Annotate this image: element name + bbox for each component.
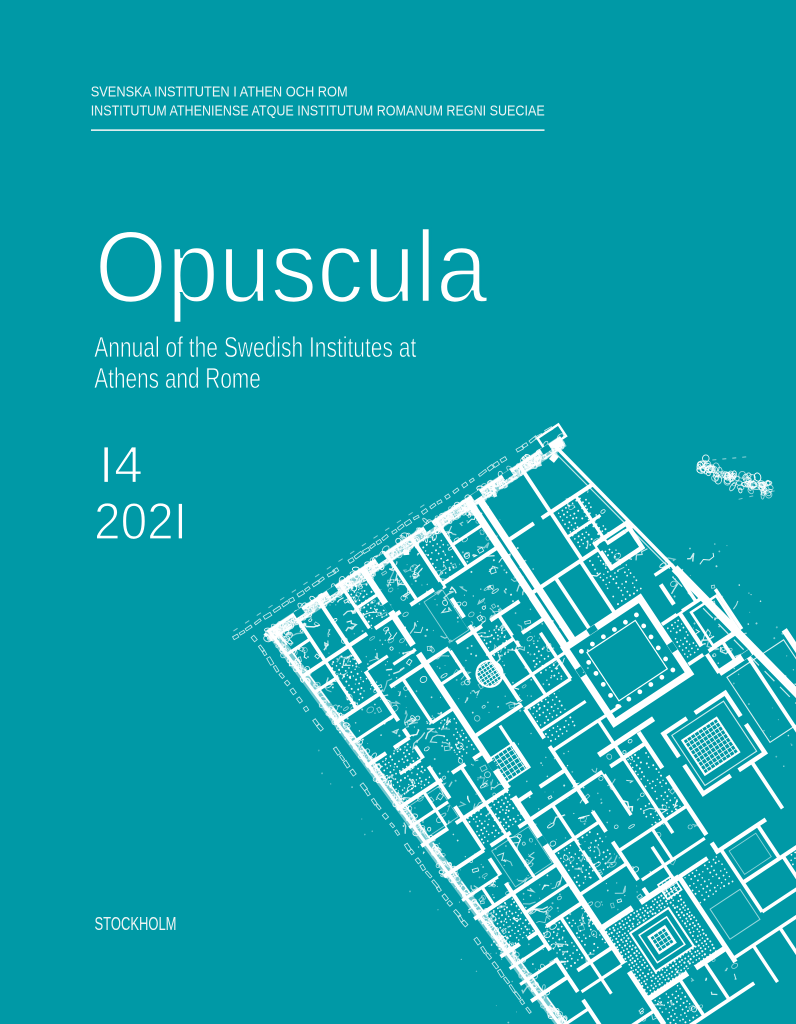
svg-text:202I: 202I (94, 493, 187, 551)
svg-text:Opuscula: Opuscula (95, 210, 488, 324)
svg-text:Athens and Rome: Athens and Rome (94, 363, 260, 395)
svg-text:SVENSKA INSTITUTEN I ATHEN OCH: SVENSKA INSTITUTEN I ATHEN OCH ROM (91, 84, 348, 101)
svg-text:INSTITUTUM ATHENIENSE ATQUE IN: INSTITUTUM ATHENIENSE ATQUE INSTITUTUM R… (91, 103, 545, 120)
svg-text:Annual of the Swedish Institut: Annual of the Swedish Institutes at (94, 332, 416, 364)
svg-text:STOCKHOLM: STOCKHOLM (95, 913, 177, 934)
svg-text:I4: I4 (99, 436, 144, 494)
